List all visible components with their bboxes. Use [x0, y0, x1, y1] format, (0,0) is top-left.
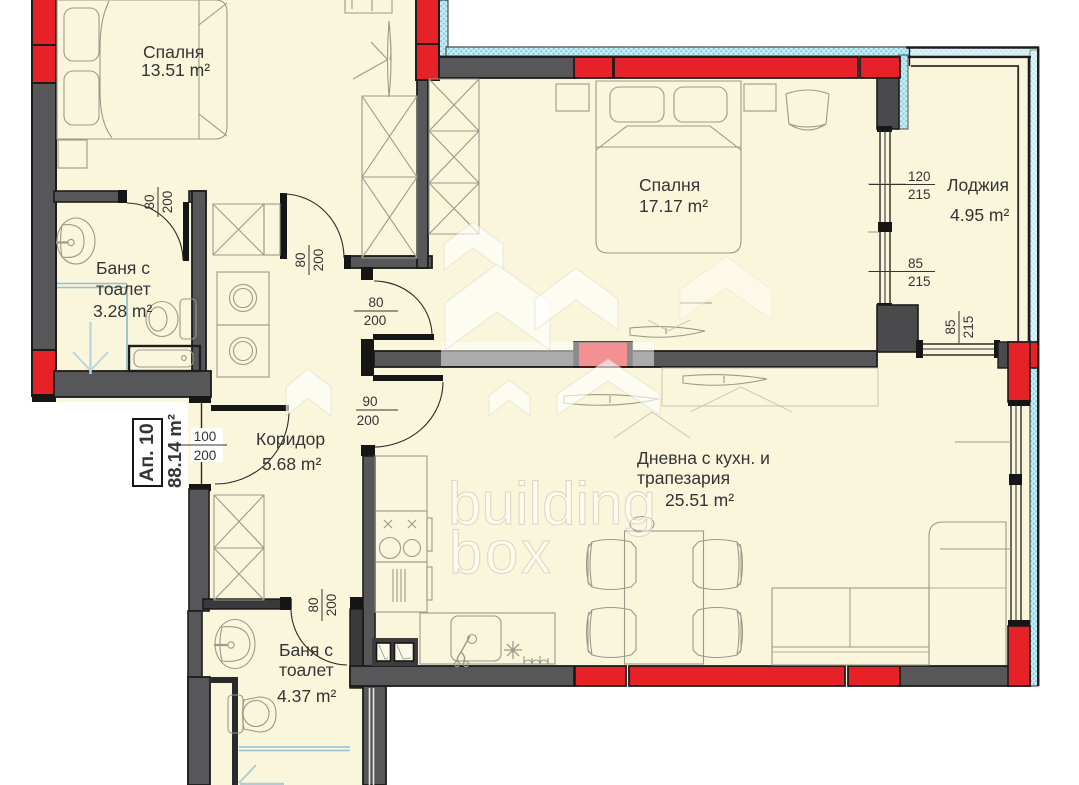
svg-text:Спалня: Спалня	[143, 42, 204, 62]
svg-text:Коридор: Коридор	[256, 429, 325, 449]
svg-text:трапезария: трапезария	[637, 468, 730, 488]
svg-text:13.51 m²: 13.51 m²	[141, 60, 210, 80]
svg-text:200: 200	[311, 249, 326, 272]
svg-text:3.28 m²: 3.28 m²	[93, 301, 152, 321]
svg-text:80: 80	[306, 597, 321, 612]
svg-text:215: 215	[908, 274, 931, 289]
svg-text:25.51 m²: 25.51 m²	[665, 490, 734, 510]
svg-text:Ап. 10: Ап. 10	[136, 423, 158, 482]
svg-text:200: 200	[357, 413, 380, 428]
svg-text:80: 80	[142, 194, 157, 209]
svg-text:88.14 m²: 88.14 m²	[164, 414, 185, 488]
svg-text:120: 120	[908, 169, 931, 184]
svg-text:Лоджия: Лоджия	[947, 175, 1009, 195]
svg-text:80: 80	[293, 252, 308, 267]
svg-text:85: 85	[943, 319, 958, 334]
svg-text:Дневна с кухн. и: Дневна с кухн. и	[637, 448, 770, 468]
svg-text:5.68 m²: 5.68 m²	[262, 454, 321, 474]
svg-text:215: 215	[908, 187, 931, 202]
svg-text:4.37 m²: 4.37 m²	[277, 686, 336, 706]
svg-text:тоалет: тоалет	[279, 660, 334, 680]
svg-text:80: 80	[368, 295, 383, 310]
svg-text:Спалня: Спалня	[639, 175, 700, 195]
svg-text:4.95 m²: 4.95 m²	[950, 205, 1009, 225]
svg-text:200: 200	[194, 448, 217, 463]
svg-text:100: 100	[194, 429, 217, 444]
svg-text:Баня с: Баня с	[96, 258, 150, 278]
svg-text:тоалет: тоалет	[96, 279, 151, 299]
svg-text:Баня с: Баня с	[279, 640, 333, 660]
svg-text:17.17 m²: 17.17 m²	[639, 196, 708, 216]
svg-text:85: 85	[908, 256, 923, 271]
svg-text:215: 215	[961, 316, 976, 339]
svg-text:200: 200	[324, 594, 339, 617]
svg-text:200: 200	[160, 191, 175, 214]
svg-text:200: 200	[364, 313, 387, 328]
svg-text:box: box	[449, 519, 551, 586]
svg-text:90: 90	[362, 394, 377, 409]
